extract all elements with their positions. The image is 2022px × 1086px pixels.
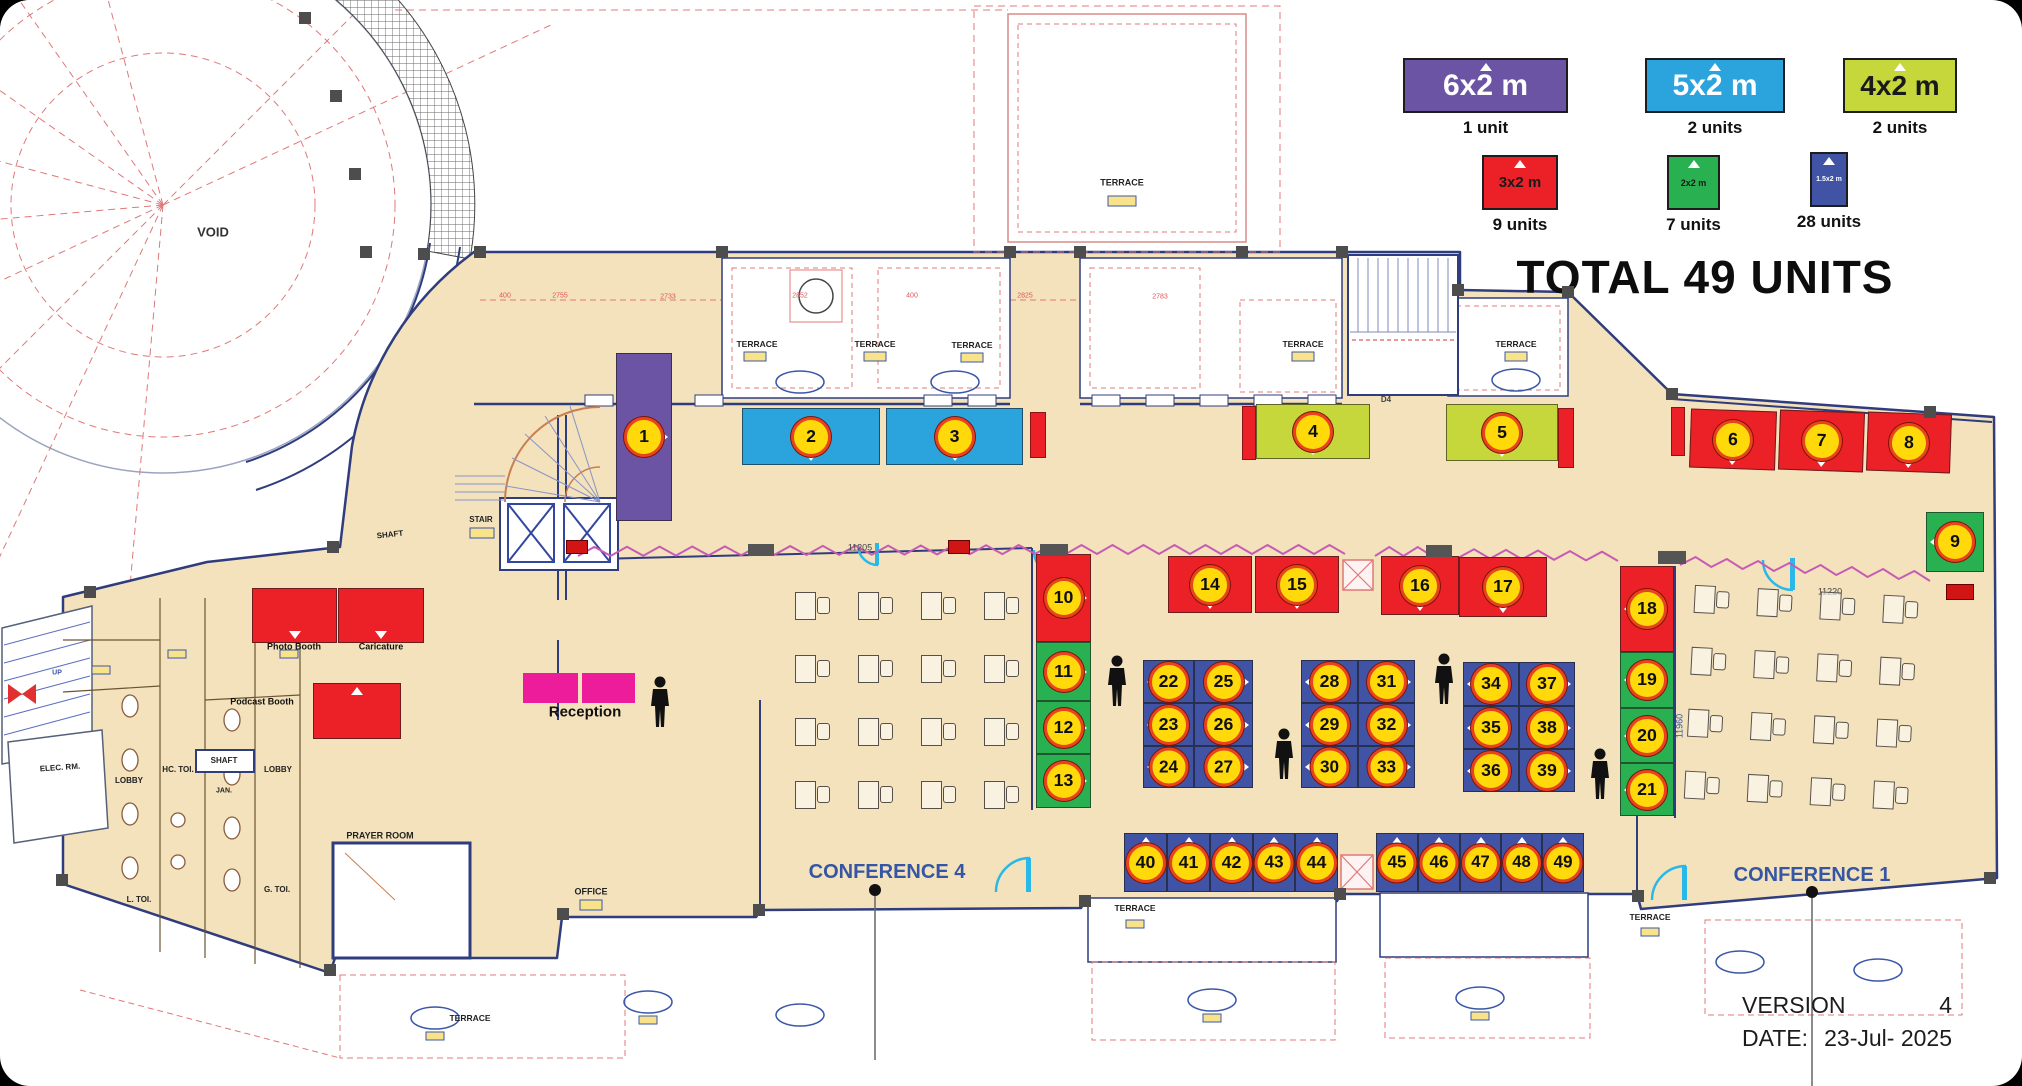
booth-31: 31: [1358, 660, 1415, 703]
booth-number-badge: 15: [1277, 565, 1317, 605]
booth-32: 32: [1358, 703, 1415, 746]
booth-33: 33: [1358, 746, 1415, 788]
desk-icon: [984, 655, 1005, 683]
booth-15: 15: [1255, 556, 1339, 613]
booth-number-badge: 26: [1204, 705, 1244, 745]
office-label: OFFICE: [575, 888, 608, 897]
desk-icon: [921, 718, 942, 746]
legend-swatch-3x2m: 3x2 m: [1482, 155, 1558, 210]
wall-column: [324, 964, 336, 976]
desk-icon: [984, 718, 1005, 746]
booth-18: 18: [1620, 566, 1674, 652]
booth-3: 3: [886, 408, 1023, 465]
version-value: 4: [1939, 992, 1952, 1019]
desk-icon: [1690, 647, 1712, 676]
desk-and-chair: [984, 592, 1020, 622]
booth-number-badge: 12: [1044, 708, 1084, 748]
dim-red: 400: [499, 293, 511, 300]
booth-number-badge: 46: [1420, 843, 1459, 882]
terrace-label: TERRACE: [1495, 340, 1536, 349]
desk-icon: [1750, 712, 1772, 741]
booth-10: 10: [1036, 554, 1091, 642]
terrace-label: TERRACE: [736, 340, 777, 349]
booth-number-badge: 31: [1367, 662, 1407, 702]
desk-and-chair: [984, 655, 1020, 685]
dim-red: 2783: [1152, 294, 1168, 301]
booth-49: 49: [1542, 833, 1584, 892]
desk-and-chair: [795, 655, 831, 685]
chair-icon: [1716, 591, 1730, 609]
terrace-label: TERRACE: [951, 341, 992, 350]
legend-swatch-6x2m: 6x2 m: [1403, 58, 1568, 113]
booth-number-badge: 8: [1888, 422, 1929, 463]
chair-icon: [943, 660, 956, 677]
fire-hose-box: [948, 540, 970, 554]
booth-19: 19: [1620, 652, 1674, 708]
desk-icon: [921, 655, 942, 683]
wall-column: [56, 874, 68, 886]
booth-number-badge: 22: [1149, 662, 1189, 702]
desk-and-chair: [1816, 653, 1854, 685]
photo-booth-label: Photo Booth: [267, 643, 321, 652]
legend-up-arrow-icon: [1823, 157, 1835, 165]
booth-24: 24: [1143, 746, 1194, 788]
booth-5: 5: [1446, 404, 1558, 461]
booth-number-badge: 20: [1627, 716, 1667, 756]
booth-47: 47: [1460, 833, 1501, 892]
d4-label: D4: [1381, 396, 1391, 404]
booth-number-badge: 39: [1527, 751, 1567, 791]
dim-red: 2755: [552, 293, 568, 300]
red-partition-strip: [1671, 407, 1685, 456]
booth-4: 4: [1256, 404, 1370, 459]
chair-icon: [1006, 660, 1019, 677]
dim-label: 11205: [848, 544, 872, 553]
booth-number-badge: 1: [624, 417, 664, 457]
booth-6: 6: [1689, 409, 1777, 471]
booth-48: 48: [1501, 833, 1542, 892]
chair-icon: [817, 597, 830, 614]
booth-number-badge: 13: [1044, 761, 1084, 801]
booth-number-badge: 3: [935, 417, 975, 457]
wall-block: [1658, 551, 1686, 564]
wall-column: [360, 246, 372, 258]
booth-37: 37: [1519, 662, 1575, 706]
desk-icon: [858, 592, 879, 620]
desk-icon: [858, 718, 879, 746]
desk-icon: [1873, 780, 1895, 809]
booth-number-badge: 44: [1297, 843, 1337, 883]
wall-column: [1074, 246, 1086, 258]
gents-toilet-label: G. TOI.: [264, 886, 290, 894]
booth-35: 35: [1463, 706, 1519, 749]
booth-7: 7: [1778, 410, 1865, 473]
up-label: UP: [52, 670, 62, 677]
legend-up-arrow-icon: [1709, 63, 1721, 71]
booth-34: 34: [1463, 662, 1519, 706]
wall-column: [349, 168, 361, 180]
wall-column: [474, 246, 486, 258]
reception-label: Reception: [549, 705, 622, 720]
desk-and-chair: [1810, 777, 1848, 809]
desk-icon: [1756, 588, 1778, 617]
desk-and-chair: [1753, 650, 1791, 682]
booth-number-badge: 28: [1310, 662, 1350, 702]
lobby-label: LOBBY: [115, 777, 143, 785]
booth-number-badge: 36: [1471, 751, 1511, 791]
desk-icon: [921, 592, 942, 620]
desk-icon: [921, 781, 942, 809]
booth-number-badge: 32: [1367, 705, 1407, 745]
booth-number-badge: 37: [1527, 664, 1567, 704]
wall-column: [330, 90, 342, 102]
person-silhouette: [1588, 748, 1612, 800]
legend-swatch-5x2m: 5x2 m: [1645, 58, 1785, 113]
chair-icon: [1769, 780, 1783, 798]
desk-icon: [1882, 595, 1904, 624]
booth-number-badge: 24: [1149, 748, 1188, 787]
booth-42: 42: [1210, 833, 1253, 892]
chair-icon: [880, 786, 893, 803]
chair-icon: [1842, 598, 1856, 616]
wall-column: [1336, 246, 1348, 258]
desk-and-chair: [1879, 657, 1917, 689]
desk-and-chair: [1819, 591, 1857, 623]
desk-icon: [984, 781, 1005, 809]
chair-icon: [1895, 787, 1909, 805]
desk-and-chair: [795, 718, 831, 748]
booth-46: 46: [1418, 833, 1460, 892]
wall-column: [84, 586, 96, 598]
booth-number-badge: 48: [1503, 844, 1541, 882]
booth-45: 45: [1376, 833, 1418, 892]
booth-number-badge: 11: [1044, 652, 1084, 692]
wall-column: [1562, 286, 1574, 298]
booth-direction-arrow-icon: [375, 631, 387, 639]
booth-number-badge: 47: [1462, 844, 1500, 882]
desk-and-chair: [921, 781, 957, 811]
chair-icon: [1713, 653, 1727, 671]
conference4-label: CONFERENCE 4: [809, 862, 966, 882]
desk-and-chair: [1687, 709, 1725, 741]
booth-number-badge: 34: [1471, 664, 1511, 704]
desk-icon: [1747, 774, 1769, 803]
version-block: VERSION 4 DATE: 23-Jul- 2025: [1742, 992, 1952, 1058]
desk-and-chair: [795, 592, 831, 622]
legend-units-label: 7 units: [1666, 215, 1721, 235]
hc-toilet-label: HC. TOI.: [162, 766, 193, 774]
booth-21: 21: [1620, 763, 1674, 816]
caricature-label: Caricature: [359, 643, 404, 652]
booth-14: 14: [1168, 556, 1252, 613]
desk-icon: [858, 781, 879, 809]
desk-and-chair: [921, 655, 957, 685]
desk-icon: [858, 655, 879, 683]
booth-number-badge: 41: [1169, 843, 1209, 883]
desk-icon: [1687, 709, 1709, 738]
booth-number-badge: 29: [1310, 705, 1350, 745]
wall-column: [1079, 895, 1091, 907]
legend-up-arrow-icon: [1894, 63, 1906, 71]
podcast-booth-label: Podcast Booth: [230, 698, 294, 707]
wall-block: [1426, 545, 1452, 557]
legend-up-arrow-icon: [1514, 160, 1526, 168]
dim-label: 11960: [1676, 714, 1685, 738]
desk-and-chair: [1690, 647, 1728, 679]
desk-and-chair: [1756, 588, 1794, 620]
reception-desk: [582, 673, 635, 703]
legend-units-label: 2 units: [1873, 118, 1928, 138]
booth-number-badge: 6: [1712, 419, 1753, 460]
booth-number-badge: 27: [1204, 748, 1243, 787]
chair-icon: [1898, 725, 1912, 743]
dim-red: 2733: [660, 294, 676, 301]
booth-30: 30: [1301, 746, 1358, 788]
booth-9: 9: [1926, 512, 1984, 572]
desk-and-chair: [984, 781, 1020, 811]
booth-23: 23: [1143, 703, 1194, 746]
chair-icon: [1835, 721, 1849, 739]
booth-12: 12: [1036, 701, 1091, 754]
chair-icon: [1779, 594, 1793, 612]
booth-number-badge: 16: [1400, 566, 1440, 606]
wall-column: [1004, 246, 1016, 258]
booth-number-badge: 25: [1204, 662, 1244, 702]
desk-and-chair: [921, 718, 957, 748]
booth-17: 17: [1459, 557, 1547, 617]
booth-number-badge: 40: [1126, 843, 1166, 883]
wall-column: [1452, 284, 1464, 296]
desk-icon: [795, 655, 816, 683]
janitor-label: JAN.: [216, 788, 232, 795]
terrace-label: TERRACE: [1629, 913, 1670, 922]
desk-icon: [1879, 657, 1901, 686]
desk-and-chair: [1876, 719, 1914, 751]
legend-units-label: 1 unit: [1463, 118, 1508, 138]
desk-icon: [1816, 653, 1838, 682]
person-silhouette: [648, 676, 672, 728]
desk-icon: [1876, 719, 1898, 748]
fire-hose-box: [1946, 584, 1974, 600]
prayer-room-label: PRAYER ROOM: [346, 832, 413, 841]
date-label: DATE:: [1742, 1025, 1808, 1052]
dim-red: 2825: [1017, 293, 1033, 300]
booth-27: 27: [1194, 746, 1253, 788]
desk-and-chair: [1882, 595, 1920, 627]
booth-25: 25: [1194, 660, 1253, 703]
desk-icon: [795, 718, 816, 746]
wall-column: [557, 908, 569, 920]
booth-28: 28: [1301, 660, 1358, 703]
desk-and-chair: [795, 781, 831, 811]
booth-36: 36: [1463, 749, 1519, 792]
wall-column: [1984, 872, 1996, 884]
booth-40: 40: [1124, 833, 1167, 892]
chair-icon: [817, 660, 830, 677]
desk-and-chair: [858, 655, 894, 685]
booth-number-badge: 30: [1310, 748, 1349, 787]
booth-number-badge: 33: [1367, 748, 1406, 787]
chair-icon: [1772, 718, 1786, 736]
booth-8: 8: [1866, 412, 1952, 474]
chair-icon: [880, 660, 893, 677]
booth-16: 16: [1381, 556, 1459, 615]
chair-icon: [943, 723, 956, 740]
chair-icon: [817, 786, 830, 803]
desk-and-chair: [984, 718, 1020, 748]
booth-11: 11: [1036, 642, 1091, 701]
wall-column: [327, 541, 339, 553]
booth-number-badge: 23: [1149, 705, 1189, 745]
person-silhouette: [1105, 655, 1129, 707]
chair-icon: [817, 723, 830, 740]
dim-red: 2852: [792, 293, 808, 300]
legend-units-label: 2 units: [1688, 118, 1743, 138]
person-silhouette: [1272, 728, 1296, 780]
void-label: VOID: [197, 226, 229, 239]
booth-number-badge: 38: [1527, 708, 1567, 748]
legend-swatch-1.5x2m: 1.5x2 m: [1810, 152, 1848, 207]
legend-units-label: 9 units: [1493, 215, 1548, 235]
booth-number-badge: 45: [1378, 843, 1417, 882]
booth-number-badge: 43: [1255, 843, 1294, 882]
booth-number-badge: 9: [1935, 522, 1975, 562]
red-partition-strip: [1030, 412, 1046, 458]
booth-13: 13: [1036, 754, 1091, 808]
chair-icon: [943, 786, 956, 803]
wall-block: [1040, 544, 1068, 556]
desk-and-chair: [1750, 712, 1788, 744]
chair-icon: [1006, 597, 1019, 614]
desk-icon: [984, 592, 1005, 620]
booth-43: 43: [1253, 833, 1295, 892]
terrace-label: TERRACE: [449, 1014, 490, 1023]
booth-22: 22: [1143, 660, 1194, 703]
desk-icon: [795, 781, 816, 809]
desk-icon: [795, 592, 816, 620]
chair-icon: [1006, 723, 1019, 740]
version-label: VERSION: [1742, 992, 1846, 1019]
wall-column: [716, 246, 728, 258]
chair-icon: [943, 597, 956, 614]
desk-and-chair: [858, 718, 894, 748]
legend-swatch-2x2m: 2x2 m: [1667, 155, 1720, 210]
desk-and-chair: [1747, 774, 1785, 806]
desk-and-chair: [858, 592, 894, 622]
booth-38: 38: [1519, 706, 1575, 749]
dim-red: 400: [906, 293, 918, 300]
date-value: 23-Jul- 2025: [1824, 1025, 1952, 1052]
floorplan-page: 6x2 m1 unit5x2 m2 units4x2 m2 units3x2 m…: [0, 0, 2022, 1086]
desk-icon: [1810, 777, 1832, 806]
conference1-label: CONFERENCE 1: [1734, 865, 1891, 885]
wall-column: [1666, 388, 1678, 400]
red-partition-strip: [1242, 406, 1256, 460]
terrace-label: TERRACE: [1114, 904, 1155, 913]
desk-and-chair: [1872, 780, 1910, 812]
terrace-label: TERRACE: [1100, 179, 1144, 188]
legend-swatch-4x2m: 4x2 m: [1843, 58, 1957, 113]
chair-icon: [1838, 660, 1852, 678]
desk-and-chair: [1684, 771, 1722, 803]
reception-desk: [523, 673, 578, 703]
booth-special: [313, 683, 401, 739]
chair-icon: [880, 597, 893, 614]
booth-direction-arrow-icon: [289, 631, 301, 639]
chair-icon: [1006, 786, 1019, 803]
desk-icon: [1813, 715, 1835, 744]
booth-26: 26: [1194, 703, 1253, 746]
chair-icon: [1709, 715, 1723, 733]
lobby-label: LOBBY: [264, 766, 292, 774]
booth-direction-arrow-icon: [351, 687, 363, 695]
booth-number-badge: 49: [1544, 843, 1583, 882]
conference1-furniture-group: [1681, 585, 1974, 859]
wall-block: [748, 544, 774, 556]
shaft-label: SHAFT: [211, 757, 238, 765]
booth-number-badge: 21: [1627, 770, 1667, 810]
booth-number-badge: 19: [1627, 660, 1667, 700]
chair-icon: [1832, 783, 1846, 801]
booth-special: [252, 588, 337, 643]
booth-41: 41: [1167, 833, 1210, 892]
booth-number-badge: 35: [1471, 708, 1511, 748]
desk-and-chair: [1693, 585, 1731, 617]
booth-number-badge: 18: [1627, 589, 1667, 629]
legend-up-arrow-icon: [1480, 63, 1492, 71]
chair-icon: [880, 723, 893, 740]
booth-number-badge: 17: [1483, 567, 1523, 607]
wall-column: [299, 12, 311, 24]
booth-20: 20: [1620, 708, 1674, 763]
person-silhouette: [1432, 653, 1456, 705]
wall-column: [1924, 406, 1936, 418]
booth-number-badge: 4: [1293, 412, 1333, 452]
chair-icon: [1901, 663, 1915, 681]
booth-39: 39: [1519, 749, 1575, 792]
chair-icon: [1905, 601, 1919, 619]
booth-number-badge: 14: [1190, 565, 1230, 605]
booth-number-badge: 42: [1212, 843, 1252, 883]
desk-and-chair: [921, 592, 957, 622]
wall-column: [1334, 888, 1346, 900]
desk-icon: [1694, 585, 1716, 614]
legend-units-label: 28 units: [1797, 212, 1861, 232]
booth-29: 29: [1301, 703, 1358, 746]
terrace-label: TERRACE: [854, 340, 895, 349]
booth-2: 2: [742, 408, 880, 465]
desk-and-chair: [858, 781, 894, 811]
terrace-label: TERRACE: [1282, 340, 1323, 349]
booth-number-badge: 7: [1801, 420, 1842, 461]
wall-column: [753, 904, 765, 916]
red-partition-strip: [1558, 408, 1574, 468]
ladies-toilet-label: L. TOI.: [127, 896, 152, 904]
desk-icon: [1753, 650, 1775, 679]
booth-number-badge: 10: [1044, 578, 1084, 618]
booth-1: 1: [616, 353, 672, 521]
chair-icon: [1706, 777, 1720, 795]
desk-icon: [1819, 591, 1841, 620]
legend-up-arrow-icon: [1688, 160, 1700, 168]
desk-and-chair: [1813, 715, 1851, 747]
booth-special: [338, 588, 424, 643]
booth-44: 44: [1295, 833, 1338, 892]
desk-icon: [1684, 771, 1706, 800]
stair-label: STAIR: [469, 516, 492, 524]
wall-column: [1236, 246, 1248, 258]
booth-number-badge: 2: [791, 417, 831, 457]
